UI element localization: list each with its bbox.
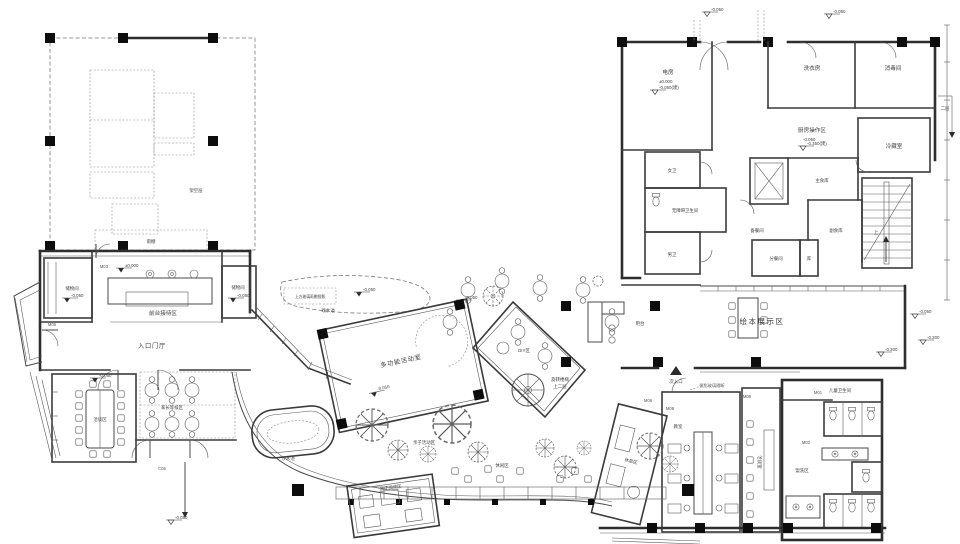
svg-text:-0.050: -0.050 — [99, 373, 112, 378]
room-label-serving-room: 分餐间 — [769, 255, 782, 262]
svg-text:-0.050: -0.050 — [71, 293, 84, 298]
svg-text:-0.050: -0.050 — [919, 309, 932, 314]
room-label-reception: 前台接待区 — [149, 309, 177, 317]
classroom-block: 休息区 M06 教室 弧形玻璃隔断 M08 M09 洽谈室 儿童卫生间 — [591, 378, 885, 544]
lobby-seating: 吧台 — [443, 268, 761, 367]
room-label-classroom: 教室 — [674, 423, 683, 430]
label-spiral-stair: 旋转楼梯 — [551, 376, 569, 383]
room-label-water-pool: 戏水池 — [321, 307, 335, 314]
room-label-stilt-area: 架空层 — [189, 187, 203, 194]
room-label-sand-pool: 沙水池 — [281, 455, 295, 461]
room-label-canopy: 雨棚 — [147, 238, 156, 245]
svg-text:-0.350(建): -0.350(建) — [807, 140, 827, 147]
door-tag-m05: M05 — [48, 322, 57, 327]
window-tag-c05: C05 — [158, 466, 166, 471]
svg-text:-0.050: -0.050 — [833, 9, 846, 14]
svg-text:-0.300: -0.300 — [885, 347, 898, 352]
door-tag-m02: M02 — [802, 440, 811, 445]
room-label-multi-room: 多功能活动室 — [380, 353, 423, 370]
door-tag-m09: M09 — [743, 394, 752, 399]
svg-text:±0.000: ±0.000 — [125, 263, 139, 268]
elevation-marker: ±0.000 — [116, 263, 139, 273]
elevation-marker: -0.050 — [354, 287, 376, 297]
svg-text:-0.050: -0.050 — [175, 515, 188, 520]
room-label-women-wc: 女卫 — [668, 167, 677, 174]
room-label-disinfection: 消毒间 — [885, 64, 902, 72]
floor-plan-drawing: 架空层 雨棚 储物间 -0.050 M03 ±0.000 前台接待区 — [0, 0, 960, 544]
room-label-talk-area: 洽谈区 — [93, 416, 107, 423]
room-label-side-store: 副食库 — [829, 227, 843, 234]
elevation-marker: -0.050 — [228, 293, 250, 303]
room-label-men-wc: 男卫 — [668, 252, 677, 258]
note-canopy-projection: 上方玻璃雨棚投影 — [295, 294, 326, 299]
power-room-elevation: ±0.000 — [659, 79, 673, 84]
elevation-marker: -0.300 — [918, 335, 940, 345]
room-label-laundry: 洗衣房 — [804, 64, 821, 72]
room-label-display-room: 绘本展示区 — [740, 316, 785, 326]
svg-text:-0.050: -0.050 — [711, 7, 724, 12]
waiting-area: 家长等候区 C05 -0.050 — [30, 372, 236, 525]
elevation-marker: -0.050 — [910, 309, 932, 319]
room-label-bar: 吧台 — [636, 320, 645, 327]
elevation-marker: -0.050 — [62, 293, 84, 303]
room-label-kids-wc: 儿童卫生间 — [829, 387, 851, 394]
room-label-entry-hall: 入口门厅 — [138, 342, 166, 350]
elevation-marker: -0.050 — [368, 384, 392, 398]
elevation-marker: -0.300 — [876, 347, 898, 357]
room-label-family-zone: 亲子活动区 — [413, 439, 436, 446]
room-label-small-store: 库 — [807, 255, 812, 262]
room-label-cold-room: 冷藏室 — [886, 142, 903, 150]
room-label-diy-room: DIY区 — [518, 348, 530, 353]
door-tag-m03: M03 — [100, 264, 109, 269]
room-label-leisure-zone: 休闲区 — [495, 462, 509, 469]
room-label-kitchen: 厨房操作区 — [798, 126, 826, 134]
room-label-waiting-area: 家长等候区 — [161, 404, 184, 411]
svg-text:-0.050: -0.050 — [363, 287, 376, 292]
room-label-rest-area: 休息区 — [624, 456, 639, 466]
multifunction-room: 多功能活动室 -0.050 — [317, 298, 488, 433]
room-label-meeting-room: 洽谈室 — [756, 455, 763, 469]
elevation-marker: -0.050(建) — [650, 84, 679, 95]
stilt-area: 架空层 — [45, 33, 255, 251]
note-glass-partition: 弧形玻璃隔断 — [699, 382, 725, 389]
service-block: -0.050 -0.050 电房 ±0.000 -0.050(建) 洗衣房 消毒… — [617, 7, 955, 278]
outdoor-terrace: 沙水池 亲子活动区 休闲区 亲子阅读区 — [232, 372, 694, 538]
elevation-marker: -0.050 — [166, 515, 188, 525]
door-tag-m06: M06 — [644, 398, 653, 403]
room-label-storage-left: 储物间 — [65, 285, 78, 292]
door-tag-m08: M08 — [666, 406, 675, 411]
room-label-storage-right: 储物间 — [231, 284, 244, 291]
label-level2: 二层 — [941, 106, 950, 112]
room-label-prep-room: 备餐间 — [750, 227, 763, 234]
label-spiral-stair-note: 上二层 — [553, 383, 567, 390]
central-area: 上方玻璃雨棚投影 戏水池 -0.050 -0.050 — [252, 275, 478, 384]
label-stair-up: 上 — [874, 229, 879, 235]
room-label-staple-store: 主食库 — [815, 177, 829, 184]
room-label-accessible-wc: 无障碍卫生间 — [672, 207, 698, 214]
floor-plan-page: 架空层 雨棚 储物间 -0.050 M03 ±0.000 前台接待区 — [0, 0, 960, 544]
elevation-marker: -0.050 — [824, 9, 846, 19]
talk-room: 洽谈区 -0.050 — [52, 373, 136, 462]
door-tag-m01: M01 — [814, 390, 823, 395]
svg-text:-0.050(建): -0.050(建) — [659, 84, 679, 91]
room-label-power-room: 电房 — [662, 68, 674, 76]
svg-text:-0.300: -0.300 — [927, 335, 940, 340]
room-label-wash-area: 盥洗区 — [795, 467, 809, 474]
elevation-marker: -0.050 — [702, 7, 724, 17]
svg-text:-0.050: -0.050 — [237, 293, 250, 298]
